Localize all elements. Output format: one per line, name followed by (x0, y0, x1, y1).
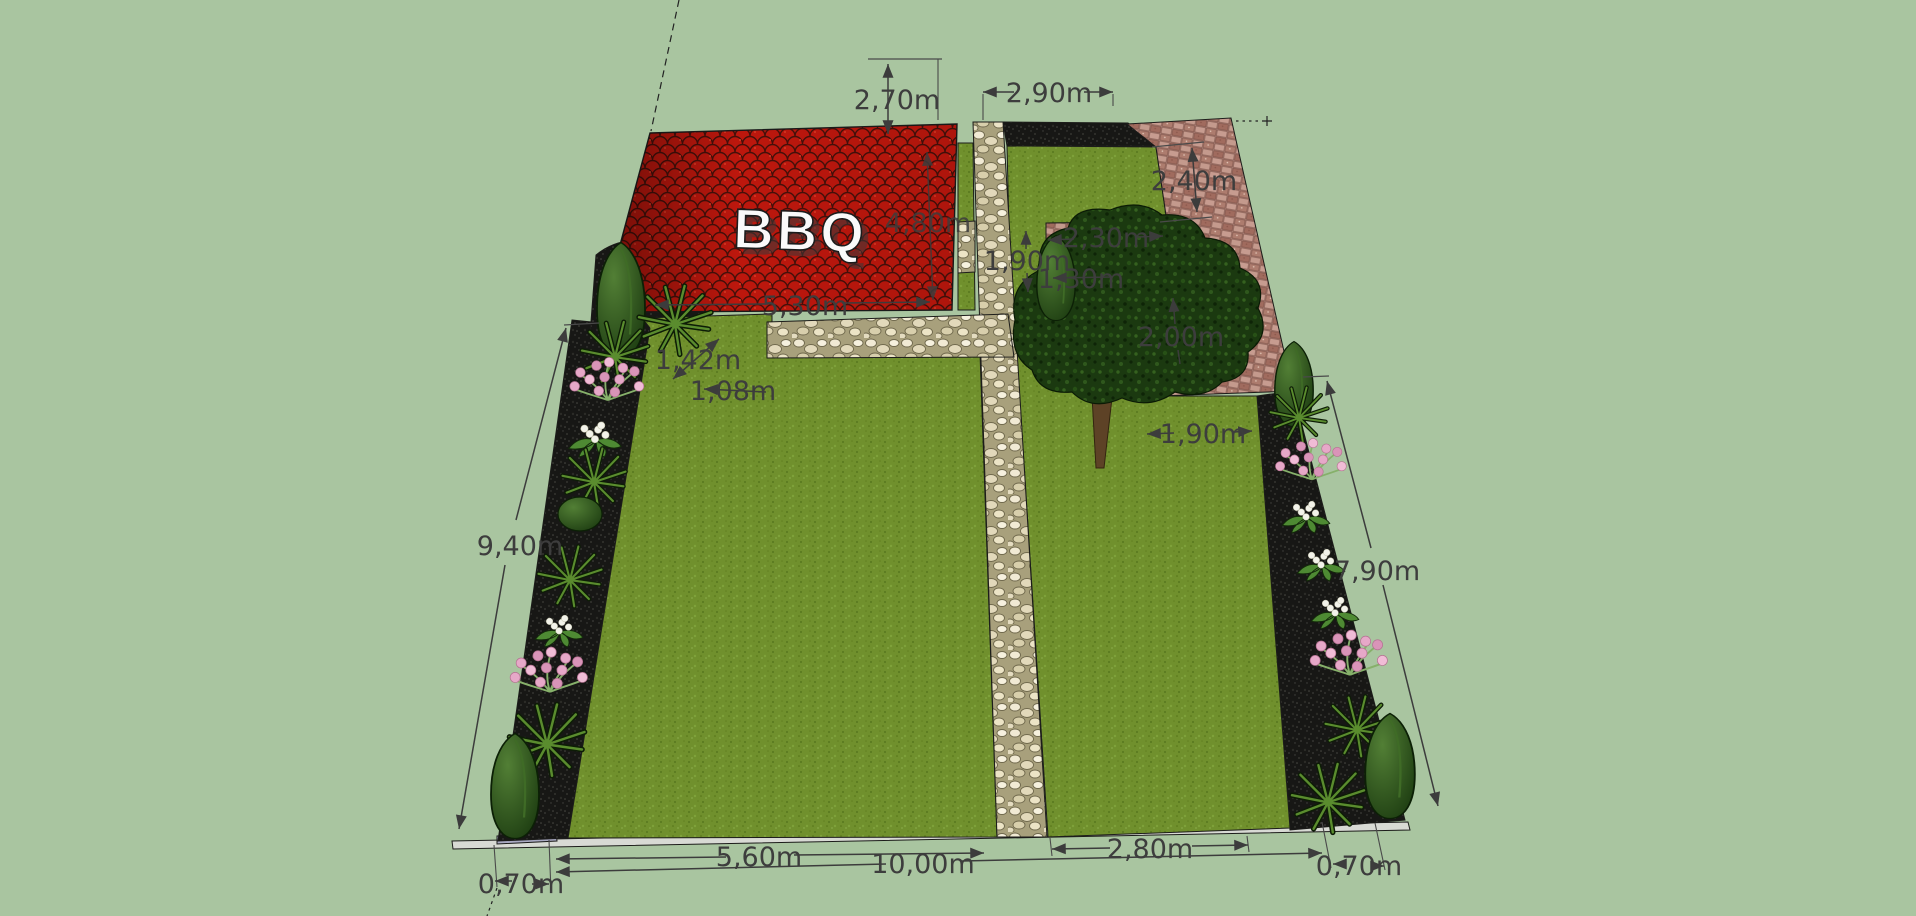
dimension-label: 2,40m (1151, 166, 1237, 197)
dimension-1-08m: 1,08m (690, 376, 776, 407)
dimension-label: 0,70m (1316, 851, 1402, 882)
dimension-label: 5,30m (762, 291, 848, 322)
garden-plan-canvas[interactable]: BBQ BBQ 2,70m 2,90m 2,40m (0, 0, 1916, 916)
dimension-1-30m: 1,30m (1038, 264, 1124, 295)
dimension-label: 2,00m (1138, 322, 1224, 353)
dimension-label: 0,70m (478, 869, 564, 900)
dimension-label: 2,90m (1006, 78, 1092, 109)
dimension-label: 1,90m (1160, 419, 1246, 450)
round-bush (558, 497, 602, 531)
bbq-text: BBQ (732, 197, 868, 265)
dimension-label: 7,90m (1334, 556, 1420, 587)
3d-viewport[interactable]: BBQ BBQ 2,70m 2,90m 2,40m (0, 0, 1916, 916)
dimension-label: 1,08m (690, 376, 776, 407)
dimension-label: 9,40m (477, 531, 563, 562)
dimension-label: 10,00m (871, 849, 975, 880)
dimension-1-42m: 1,42m (655, 339, 741, 379)
dimension-label: 1,42m (655, 345, 741, 376)
dimension-label: 2,70m (854, 85, 940, 116)
dimension-label: 2,80m (1107, 834, 1193, 865)
dimension-label: 1,30m (1038, 264, 1124, 295)
dimension-label: 4,80m (885, 208, 971, 239)
dimension-label: 2,30m (1063, 223, 1149, 254)
dimension-1-90m-mid: 1,90m (1147, 419, 1252, 450)
